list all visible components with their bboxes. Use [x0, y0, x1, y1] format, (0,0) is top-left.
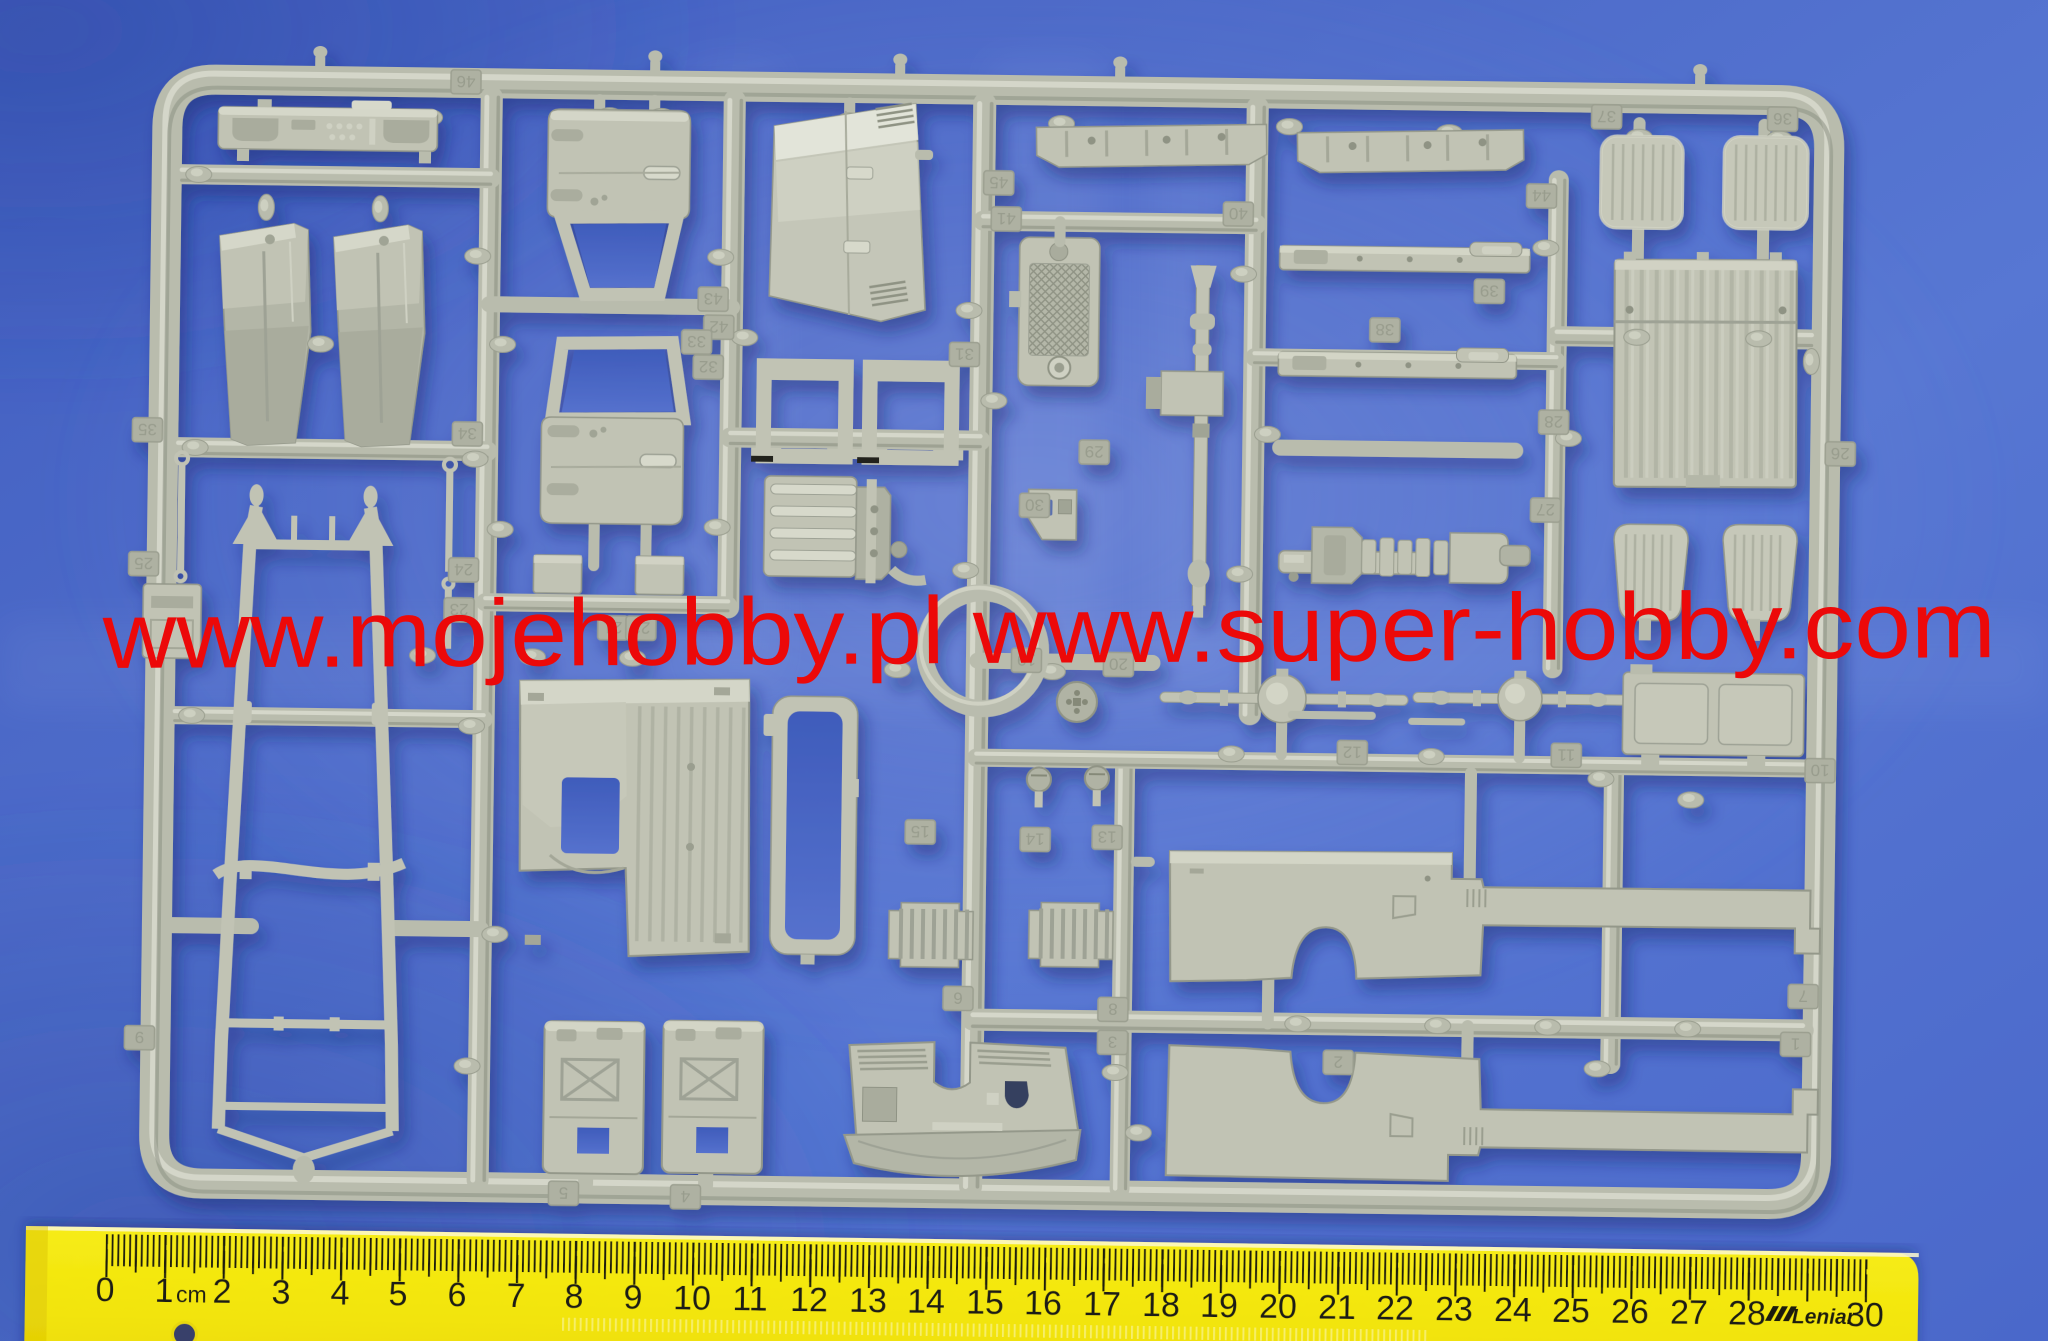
svg-text:cm: cm: [176, 1281, 207, 1307]
svg-text:13: 13: [849, 1282, 887, 1321]
svg-text:30: 30: [1025, 495, 1044, 514]
svg-text:26: 26: [1611, 1293, 1649, 1332]
svg-text:14: 14: [907, 1283, 945, 1322]
svg-text:11: 11: [732, 1280, 768, 1319]
svg-text:20: 20: [1259, 1288, 1297, 1327]
svg-text:8: 8: [564, 1278, 583, 1316]
svg-text:1: 1: [154, 1272, 173, 1310]
svg-text:18: 18: [1142, 1286, 1180, 1325]
svg-text:7: 7: [506, 1277, 525, 1315]
svg-text:4: 4: [330, 1274, 349, 1312]
svg-text:37: 37: [1597, 107, 1616, 126]
svg-text:21: 21: [1318, 1289, 1356, 1328]
svg-text:45: 45: [989, 173, 1008, 192]
svg-text:10: 10: [1811, 761, 1830, 780]
svg-text:38: 38: [1375, 320, 1394, 339]
svg-text:28: 28: [1544, 412, 1563, 431]
svg-text:6: 6: [953, 988, 963, 1007]
svg-text:27: 27: [1670, 1294, 1708, 1333]
svg-text:5: 5: [559, 1183, 569, 1202]
svg-text:31: 31: [955, 344, 974, 363]
svg-text:34: 34: [458, 424, 477, 443]
svg-text:8: 8: [1108, 999, 1118, 1018]
svg-text:3: 3: [1108, 1032, 1118, 1051]
svg-text:23: 23: [1435, 1290, 1473, 1329]
svg-text:43: 43: [704, 289, 723, 308]
svg-text:1: 1: [1791, 1034, 1801, 1053]
svg-text:2: 2: [1333, 1052, 1343, 1071]
svg-text:14: 14: [1026, 829, 1045, 848]
svg-text:10: 10: [673, 1279, 711, 1318]
svg-text:9: 9: [135, 1028, 145, 1047]
svg-text:3: 3: [271, 1274, 290, 1312]
svg-text:39: 39: [1480, 281, 1499, 300]
svg-text:40: 40: [1229, 204, 1248, 223]
svg-text:41: 41: [997, 209, 1016, 228]
svg-text:6: 6: [447, 1276, 466, 1314]
svg-text:4: 4: [681, 1187, 691, 1206]
svg-text:44: 44: [1532, 186, 1551, 205]
svg-text:5: 5: [388, 1275, 407, 1313]
svg-text:www.mojehobby.pl www.super-hob: www.mojehobby.pl www.super-hobby.com: [101, 572, 1996, 689]
svg-text:7: 7: [1798, 986, 1808, 1005]
svg-text:33: 33: [687, 332, 706, 351]
svg-text:11: 11: [1557, 745, 1575, 764]
svg-text:Leniar: Leniar: [1792, 1305, 1857, 1329]
svg-text:13: 13: [1098, 827, 1117, 846]
svg-text:46: 46: [456, 72, 475, 91]
svg-text:28: 28: [1728, 1294, 1766, 1333]
svg-text:27: 27: [1536, 500, 1555, 519]
svg-text:36: 36: [1773, 109, 1792, 128]
svg-text:35: 35: [138, 420, 157, 439]
svg-text:0: 0: [95, 1271, 114, 1309]
svg-text:12: 12: [1343, 742, 1362, 761]
svg-text:16: 16: [1024, 1284, 1062, 1323]
svg-text:19: 19: [1200, 1287, 1238, 1326]
svg-text:29: 29: [1085, 442, 1104, 461]
svg-text:2: 2: [212, 1273, 231, 1311]
svg-text:12: 12: [790, 1281, 828, 1320]
svg-text:15: 15: [911, 822, 930, 841]
svg-text:24: 24: [1494, 1291, 1532, 1330]
svg-text:17: 17: [1083, 1285, 1121, 1324]
svg-text:9: 9: [623, 1279, 642, 1317]
svg-text:22: 22: [1376, 1289, 1414, 1328]
svg-text:25: 25: [134, 554, 153, 573]
svg-text:24: 24: [454, 560, 473, 579]
svg-text:15: 15: [966, 1283, 1004, 1322]
svg-text:25: 25: [1552, 1292, 1590, 1331]
svg-text:32: 32: [699, 357, 718, 376]
svg-text:26: 26: [1831, 444, 1850, 463]
